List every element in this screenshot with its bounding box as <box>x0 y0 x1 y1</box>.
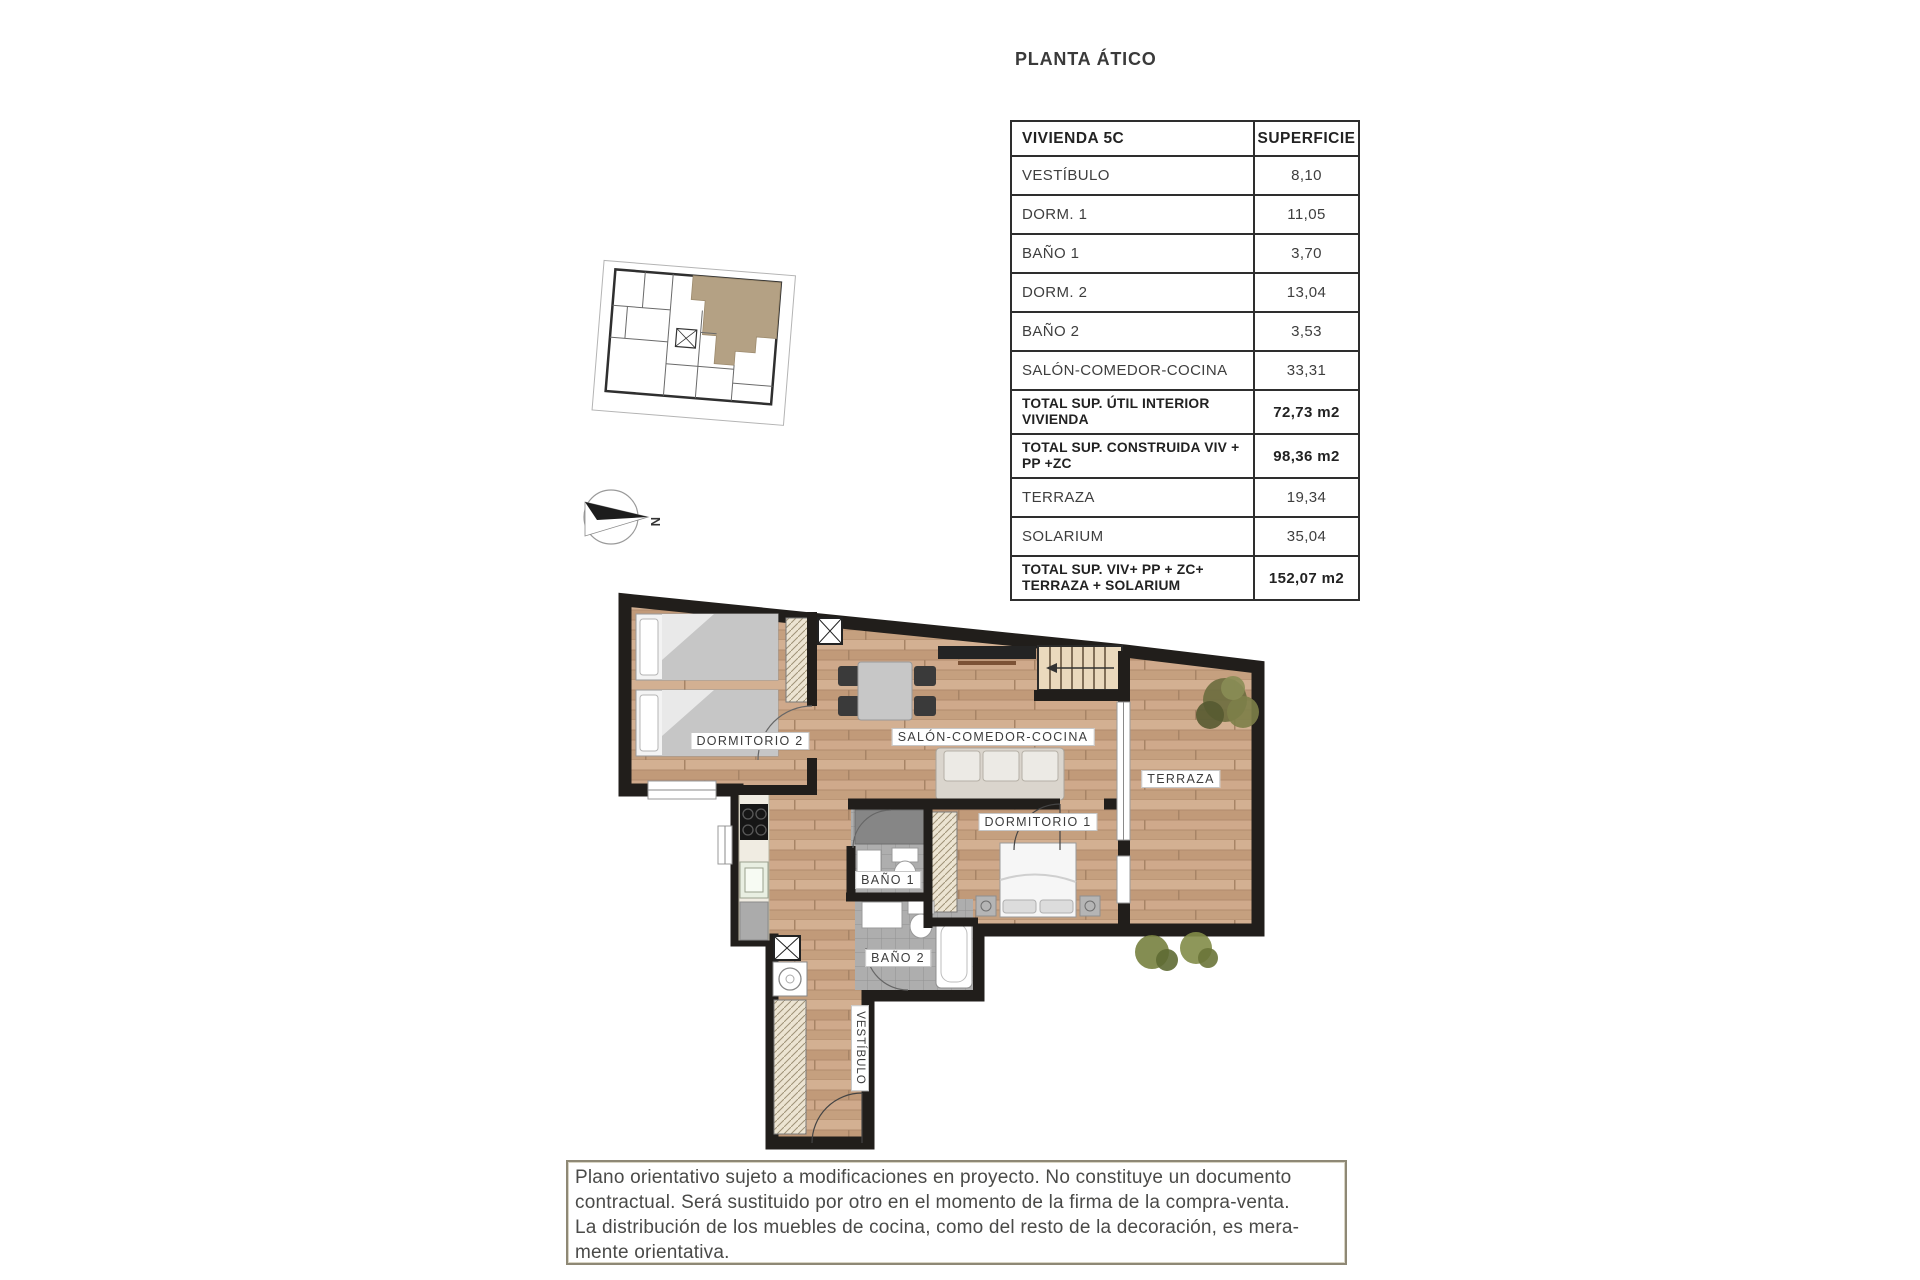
row-label: SALÓN-COMEDOR-COCINA <box>1012 352 1253 389</box>
table-row: BAÑO 13,70 <box>1012 233 1358 272</box>
table-row: DORM. 213,04 <box>1012 272 1358 311</box>
room-label-bano-2: BAÑO 2 <box>865 949 931 967</box>
shaft2-icon <box>774 936 800 960</box>
table-row: TERRAZA19,34 <box>1012 477 1358 516</box>
wardrobe-dorm1 <box>931 812 957 912</box>
kitchen-counter <box>739 793 769 940</box>
table-row: DORM. 111,05 <box>1012 194 1358 233</box>
bed-single-1 <box>636 614 778 680</box>
row-label: SOLARIUM <box>1012 518 1253 555</box>
room-label-terraza: TERRAZA <box>1141 770 1220 788</box>
row-value: 8,10 <box>1253 157 1358 194</box>
apartment-plan <box>625 600 1259 1143</box>
shower <box>855 810 926 844</box>
row-value: 3,53 <box>1253 313 1358 350</box>
row-label: VESTÍBULO <box>1012 157 1253 194</box>
sofa <box>936 748 1064 800</box>
row-value: 11,05 <box>1253 196 1358 233</box>
row-value: SUPERFICIE <box>1253 122 1358 155</box>
row-label: TOTAL SUP. ÚTIL INTERIOR VIVIENDA <box>1012 391 1253 433</box>
table-row: TOTAL SUP. CONSTRUIDA VIV + PP +ZC98,36 … <box>1012 433 1358 477</box>
row-value: 35,04 <box>1253 518 1358 555</box>
disclaimer-line: contractual. Será sustituido por otro en… <box>575 1190 1338 1215</box>
washing-machine <box>773 962 807 996</box>
table-header-row: VIVIENDA 5CSUPERFICIE <box>1012 122 1358 155</box>
row-value: 152,07 m2 <box>1253 557 1358 599</box>
north-label: N <box>648 517 663 526</box>
row-value: 3,70 <box>1253 235 1358 272</box>
row-value: 72,73 m2 <box>1253 391 1358 433</box>
key-plan <box>592 260 795 425</box>
row-label: TOTAL SUP. VIV+ PP + ZC+ TERRAZA + SOLAR… <box>1012 557 1253 599</box>
wardrobe-hall <box>774 1000 806 1134</box>
table-row: BAÑO 23,53 <box>1012 311 1358 350</box>
table-row: SOLARIUM35,04 <box>1012 516 1358 555</box>
floor-plan-drawing: N <box>0 0 1920 1280</box>
row-label: BAÑO 1 <box>1012 235 1253 272</box>
north-arrow-icon: N <box>584 490 663 544</box>
row-label: BAÑO 2 <box>1012 313 1253 350</box>
plan-sheet: PLANTA ÁTICO <box>0 0 1920 1280</box>
row-label: TERRAZA <box>1012 479 1253 516</box>
row-value: 13,04 <box>1253 274 1358 311</box>
table-row: VESTÍBULO8,10 <box>1012 155 1358 194</box>
row-label: DORM. 1 <box>1012 196 1253 233</box>
room-label-vestibulo: VESTÍBULO <box>851 1005 869 1091</box>
table-row: TOTAL SUP. VIV+ PP + ZC+ TERRAZA + SOLAR… <box>1012 555 1358 599</box>
row-value: 98,36 m2 <box>1253 435 1358 477</box>
room-label-dormitorio-1: DORMITORIO 1 <box>978 813 1097 831</box>
row-label: VIVIENDA 5C <box>1012 122 1253 155</box>
room-label-salon-comedor-cocina: SALÓN-COMEDOR-COCINA <box>892 728 1095 746</box>
room-label-bano-1: BAÑO 1 <box>855 871 921 889</box>
stairs <box>1034 646 1126 701</box>
shaft-icon <box>818 618 842 644</box>
row-value: 19,34 <box>1253 479 1358 516</box>
row-value: 33,31 <box>1253 352 1358 389</box>
room-label-dormitorio-2: DORMITORIO 2 <box>690 732 809 750</box>
table-row: SALÓN-COMEDOR-COCINA33,31 <box>1012 350 1358 389</box>
disclaimer-box: Plano orientativo sujeto a modificacione… <box>566 1160 1347 1265</box>
disclaimer-line: mente orientativa. <box>575 1240 1338 1265</box>
plant <box>1135 932 1218 971</box>
row-label: TOTAL SUP. CONSTRUIDA VIV + PP +ZC <box>1012 435 1253 477</box>
table-row: TOTAL SUP. ÚTIL INTERIOR VIVIENDA72,73 m… <box>1012 389 1358 433</box>
sliding-door <box>1117 702 1130 903</box>
area-table: VIVIENDA 5CSUPERFICIEVESTÍBULO8,10DORM. … <box>1010 120 1360 601</box>
disclaimer-line: La distribución de los muebles de cocina… <box>575 1215 1338 1240</box>
disclaimer-line: Plano orientativo sujeto a modificacione… <box>575 1165 1338 1190</box>
row-label: DORM. 2 <box>1012 274 1253 311</box>
